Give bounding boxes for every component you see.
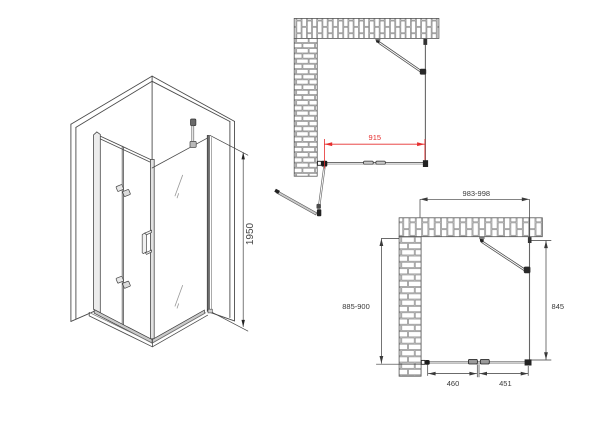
svg-text:845: 845 (552, 302, 565, 311)
svg-text:885-900: 885-900 (342, 302, 370, 311)
svg-text:915: 915 (369, 133, 382, 142)
svg-text:983-998: 983-998 (463, 189, 491, 198)
svg-text:460: 460 (447, 379, 460, 388)
svg-text:451: 451 (499, 379, 512, 388)
svg-text:1950: 1950 (245, 222, 256, 245)
